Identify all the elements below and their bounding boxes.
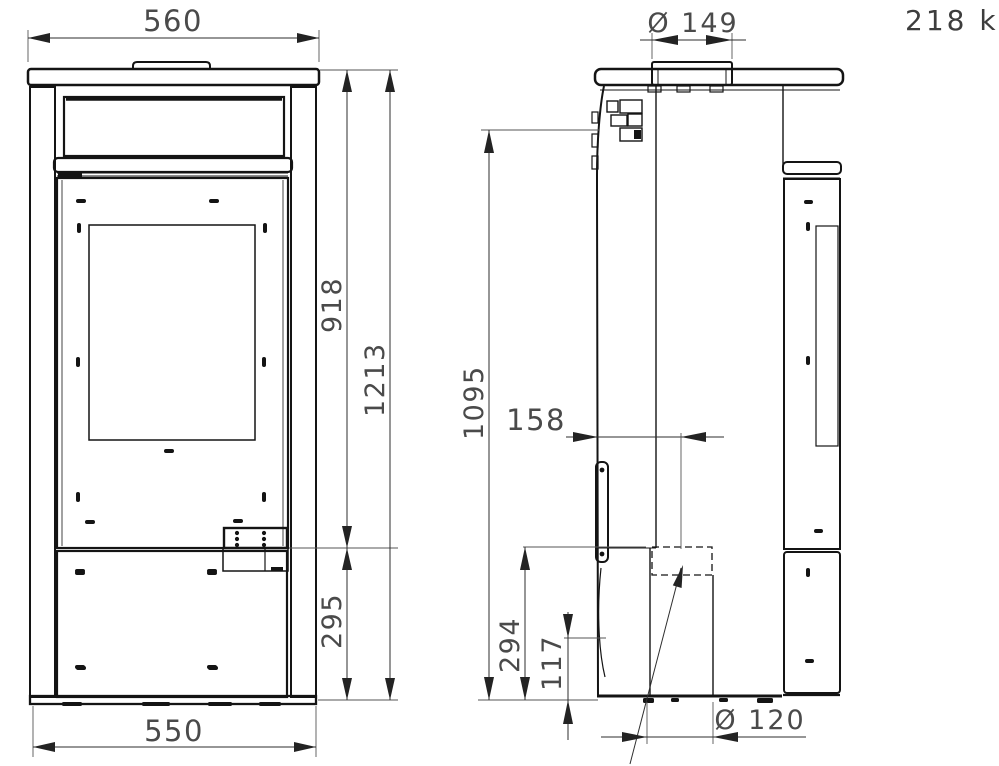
side-view bbox=[592, 62, 843, 764]
side-rear-panel-upper bbox=[784, 179, 840, 549]
side-top-plate bbox=[595, 69, 843, 85]
side-front-edge bbox=[597, 86, 604, 697]
dim-label-total-height: 1213 bbox=[360, 342, 391, 417]
front-top-plate bbox=[28, 69, 319, 85]
front-shelf-dark-dash bbox=[58, 173, 82, 177]
front-upper-recess bbox=[64, 97, 284, 156]
dim-label-bottom-width: 550 bbox=[144, 714, 204, 748]
front-door-glass bbox=[89, 225, 255, 440]
dim-flue-diameter: Ø 149 bbox=[640, 8, 746, 59]
front-view bbox=[28, 62, 319, 706]
dim-front-top-width: 560 bbox=[28, 4, 319, 62]
side-handle-pin-top bbox=[600, 468, 605, 473]
dim-front-total-height: 1213 bbox=[360, 70, 395, 700]
dim-label-bottom-edge-height: 117 bbox=[537, 635, 568, 691]
dim-label-outlet-height: 294 bbox=[495, 617, 526, 673]
side-flue-collar bbox=[652, 62, 732, 85]
dim-label-control-height: 1095 bbox=[459, 365, 490, 440]
dim-rear-outlet-diameter: Ø 120 bbox=[601, 702, 806, 744]
dim-label-outlet-offset: 158 bbox=[506, 403, 566, 437]
dim-front-upper-height: 918 bbox=[317, 70, 352, 548]
dim-side-bottom-edge-height: 117 bbox=[537, 612, 606, 740]
side-feet bbox=[643, 698, 773, 703]
side-rear-panel-inset bbox=[816, 226, 838, 446]
side-handle-pin-bottom bbox=[600, 552, 605, 557]
dim-front-bottom-width: 550 bbox=[33, 706, 316, 757]
dim-front-base-height: 295 bbox=[317, 548, 352, 700]
weight-label: 218 kg bbox=[905, 4, 999, 37]
side-rear-panel-lower bbox=[784, 552, 840, 693]
side-air-controls bbox=[607, 100, 642, 141]
side-door-lower-curve bbox=[599, 568, 605, 677]
front-door-panel bbox=[57, 178, 288, 548]
side-collar-tabs bbox=[648, 86, 723, 92]
dim-label-base-height: 295 bbox=[317, 593, 348, 649]
front-latch-block bbox=[224, 528, 287, 548]
front-screw-marks bbox=[75, 199, 267, 669]
dim-label-top-width: 560 bbox=[143, 4, 203, 38]
front-base-panel bbox=[57, 551, 287, 697]
rear-outlet-leader-arrowhead bbox=[673, 565, 683, 588]
side-rear-panel-screws bbox=[804, 200, 823, 663]
dim-label-upper-height: 918 bbox=[317, 277, 348, 333]
dim-side-outlet-offset: 158 bbox=[506, 403, 724, 549]
front-latch-dots bbox=[235, 531, 266, 547]
rear-outlet-leader-line bbox=[630, 568, 681, 764]
stove-dimension-drawing: 560 550 918 295 bbox=[0, 0, 999, 766]
dim-label-flue-diameter: Ø 149 bbox=[647, 8, 738, 39]
front-base-screws bbox=[75, 571, 218, 670]
technical-drawing-canvas: 560 550 918 295 bbox=[0, 0, 999, 766]
front-shelf-band bbox=[54, 158, 292, 172]
side-rear-lip bbox=[783, 162, 841, 174]
front-right-column bbox=[291, 87, 316, 697]
front-left-column bbox=[30, 87, 55, 697]
dim-label-rear-outlet-diameter: Ø 120 bbox=[714, 705, 805, 736]
front-ash-lip-dash bbox=[271, 567, 283, 571]
dimensions: 560 550 918 295 bbox=[28, 4, 806, 757]
